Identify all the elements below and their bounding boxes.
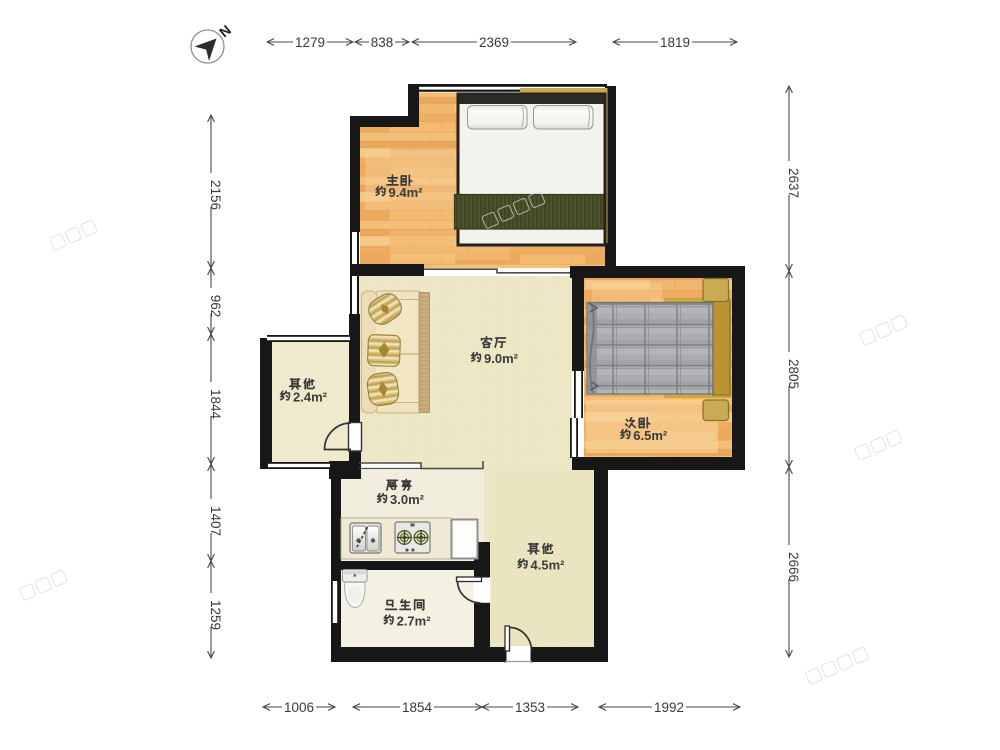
svg-text:1819: 1819 (660, 35, 690, 50)
svg-text:1854: 1854 (402, 700, 433, 715)
svg-text:962: 962 (208, 295, 223, 318)
svg-text:2369: 2369 (479, 35, 509, 50)
svg-text:2.7m²: 2.7m² (397, 613, 432, 628)
svg-text:1992: 1992 (654, 700, 684, 715)
svg-text:1279: 1279 (295, 35, 325, 50)
svg-text:6.5m²: 6.5m² (633, 428, 668, 443)
svg-text:9.0m²: 9.0m² (484, 351, 519, 366)
svg-text:9.4m²: 9.4m² (389, 185, 424, 200)
svg-text:2805: 2805 (786, 359, 801, 389)
svg-text:2.4m²: 2.4m² (293, 389, 328, 404)
svg-text:2666: 2666 (786, 552, 801, 582)
svg-text:838: 838 (371, 35, 394, 50)
svg-text:1006: 1006 (284, 700, 314, 715)
svg-text:3.0m²: 3.0m² (390, 492, 425, 507)
svg-text:1353: 1353 (515, 700, 545, 715)
svg-text:2156: 2156 (208, 180, 223, 210)
svg-text:1407: 1407 (208, 506, 223, 536)
svg-text:1259: 1259 (208, 600, 223, 630)
svg-text:4.5m²: 4.5m² (531, 557, 566, 572)
svg-text:1844: 1844 (208, 389, 223, 420)
svg-text:2637: 2637 (786, 168, 801, 198)
